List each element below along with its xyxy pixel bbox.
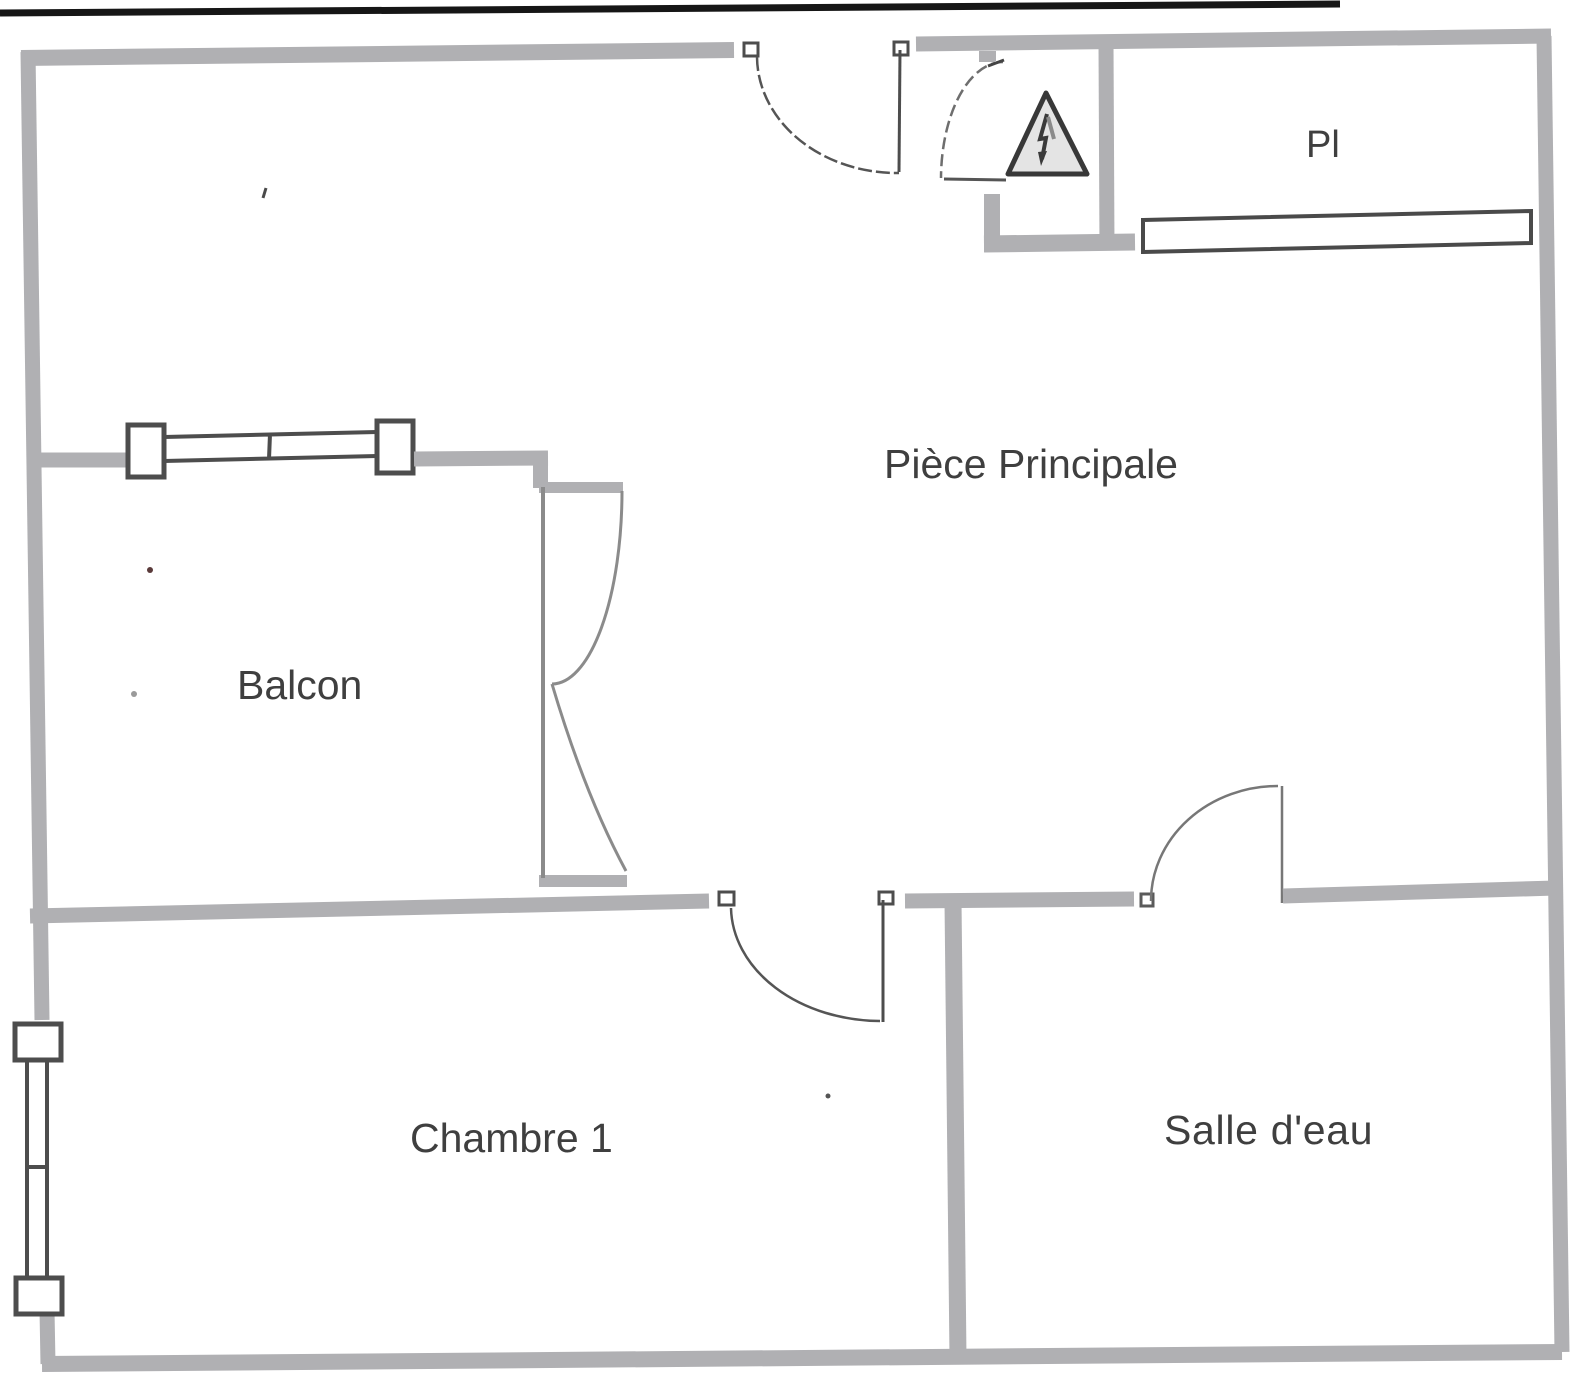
svg-text:Balcon: Balcon: [237, 662, 362, 708]
svg-text:Pl: Pl: [1306, 124, 1340, 166]
svg-text:Pièce Principale: Pièce Principale: [884, 441, 1178, 487]
svg-text:Salle d'eau: Salle d'eau: [1164, 1107, 1373, 1153]
svg-text:Chambre 1: Chambre 1: [410, 1115, 613, 1161]
